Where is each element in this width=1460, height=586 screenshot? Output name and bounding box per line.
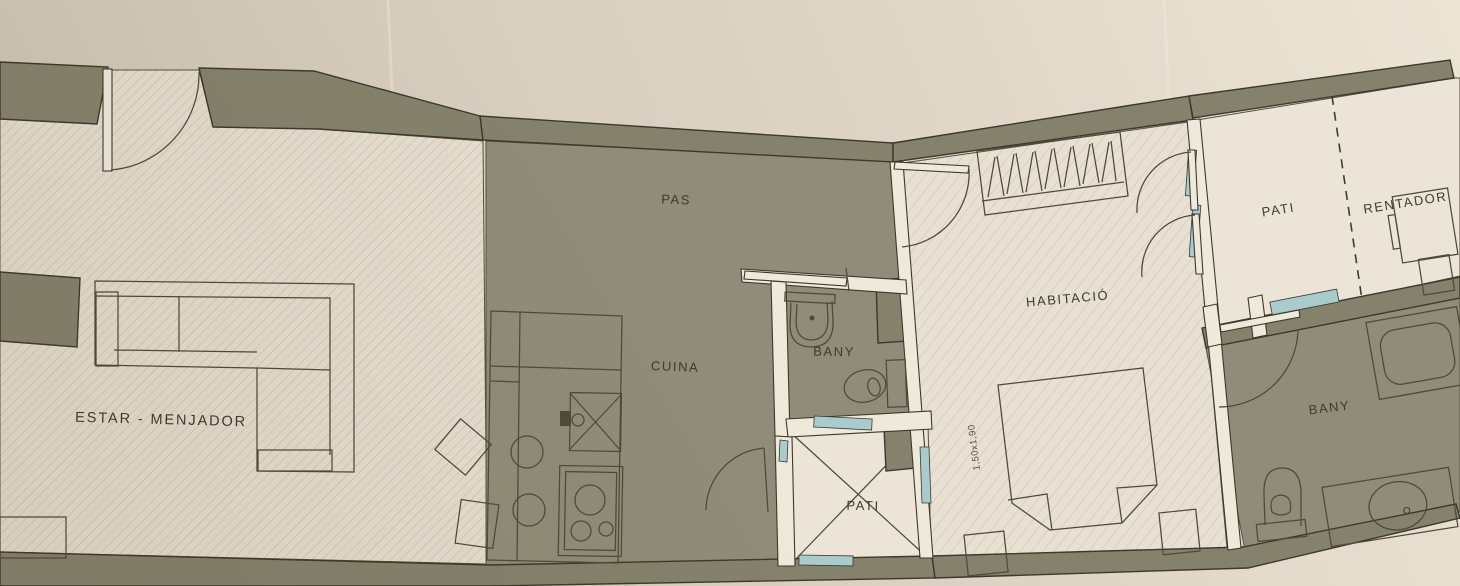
label-cuina: CUINA	[651, 358, 700, 375]
window	[779, 440, 788, 462]
faucet	[560, 411, 571, 426]
floor-plan-drawing: ESTAR - MENJADOR PAS CUINA BANY PATI HAB…	[0, 0, 1460, 586]
label-bany-center: BANY	[813, 344, 855, 360]
wall-balcony-left	[0, 62, 108, 124]
window	[799, 555, 853, 566]
label-pati-center: PATI	[846, 498, 880, 514]
balcony-door-leaf	[103, 69, 112, 171]
wall-left-mid	[0, 272, 80, 347]
window	[920, 447, 931, 503]
label-pas: PAS	[661, 191, 691, 207]
floor-habitacio	[903, 122, 1227, 557]
floor-plan-photo: ESTAR - MENJADOR PAS CUINA BANY PATI HAB…	[0, 0, 1460, 586]
